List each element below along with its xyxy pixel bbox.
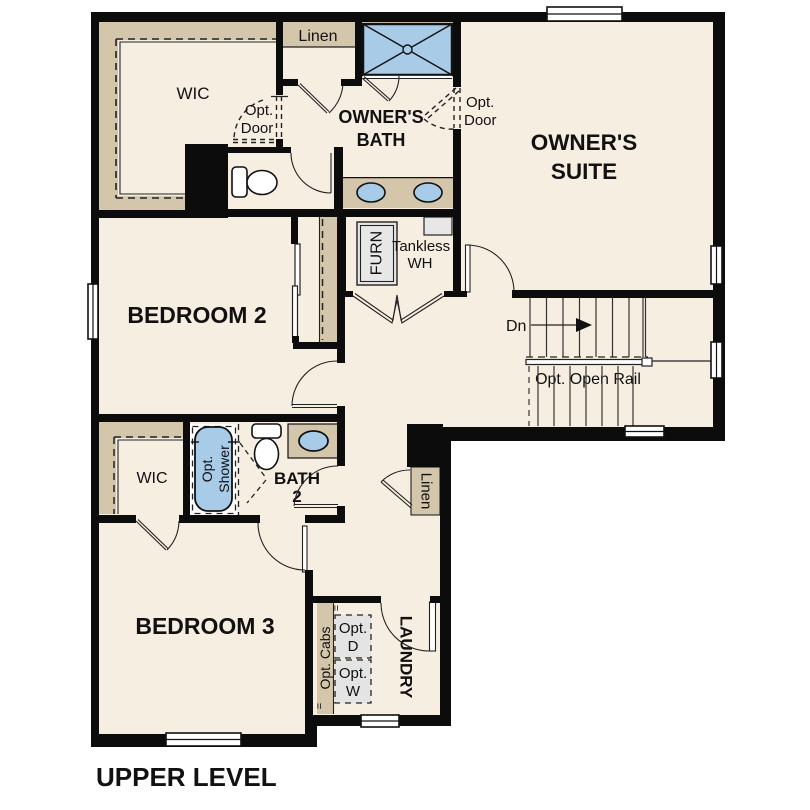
svg-text:Shower: Shower — [216, 445, 232, 493]
svg-text:BEDROOM 2: BEDROOM 2 — [127, 302, 266, 328]
svg-text:2: 2 — [292, 487, 301, 506]
svg-text:Opt.: Opt. — [339, 665, 367, 682]
svg-text:WH: WH — [408, 255, 433, 272]
svg-text:Opt.: Opt. — [199, 456, 215, 482]
svg-text:WIC: WIC — [176, 84, 209, 103]
svg-text:BATH: BATH — [274, 469, 320, 488]
svg-text:Linen: Linen — [418, 473, 435, 510]
svg-text:SUITE: SUITE — [551, 159, 617, 184]
svg-text:W: W — [346, 683, 361, 700]
svg-text:OWNER'S: OWNER'S — [531, 130, 638, 155]
svg-text:Dn: Dn — [506, 318, 526, 335]
svg-text:Opt.: Opt. — [339, 620, 367, 637]
svg-text:Opt. Cabs: Opt. Cabs — [317, 626, 333, 689]
svg-text:WIC: WIC — [136, 470, 167, 487]
svg-text:UPPER LEVEL: UPPER LEVEL — [96, 762, 277, 792]
svg-text:=: = — [331, 605, 343, 611]
svg-text:BEDROOM 3: BEDROOM 3 — [135, 613, 274, 639]
svg-text:OWNER'S: OWNER'S — [338, 107, 423, 127]
svg-text:Opt.: Opt. — [466, 94, 494, 111]
svg-text:=: = — [314, 703, 326, 709]
svg-text:LAUNDRY: LAUNDRY — [397, 616, 416, 699]
svg-text:Door: Door — [241, 120, 274, 137]
svg-text:BATH: BATH — [357, 130, 406, 150]
svg-text:Opt. Open Rail: Opt. Open Rail — [535, 371, 641, 388]
svg-text:D: D — [348, 638, 359, 655]
svg-text:Linen: Linen — [298, 28, 337, 45]
svg-text:Tankless: Tankless — [392, 238, 450, 255]
svg-text:Door: Door — [464, 112, 497, 129]
svg-text:FURN: FURN — [369, 231, 386, 275]
svg-text:Opt.: Opt. — [245, 102, 273, 119]
